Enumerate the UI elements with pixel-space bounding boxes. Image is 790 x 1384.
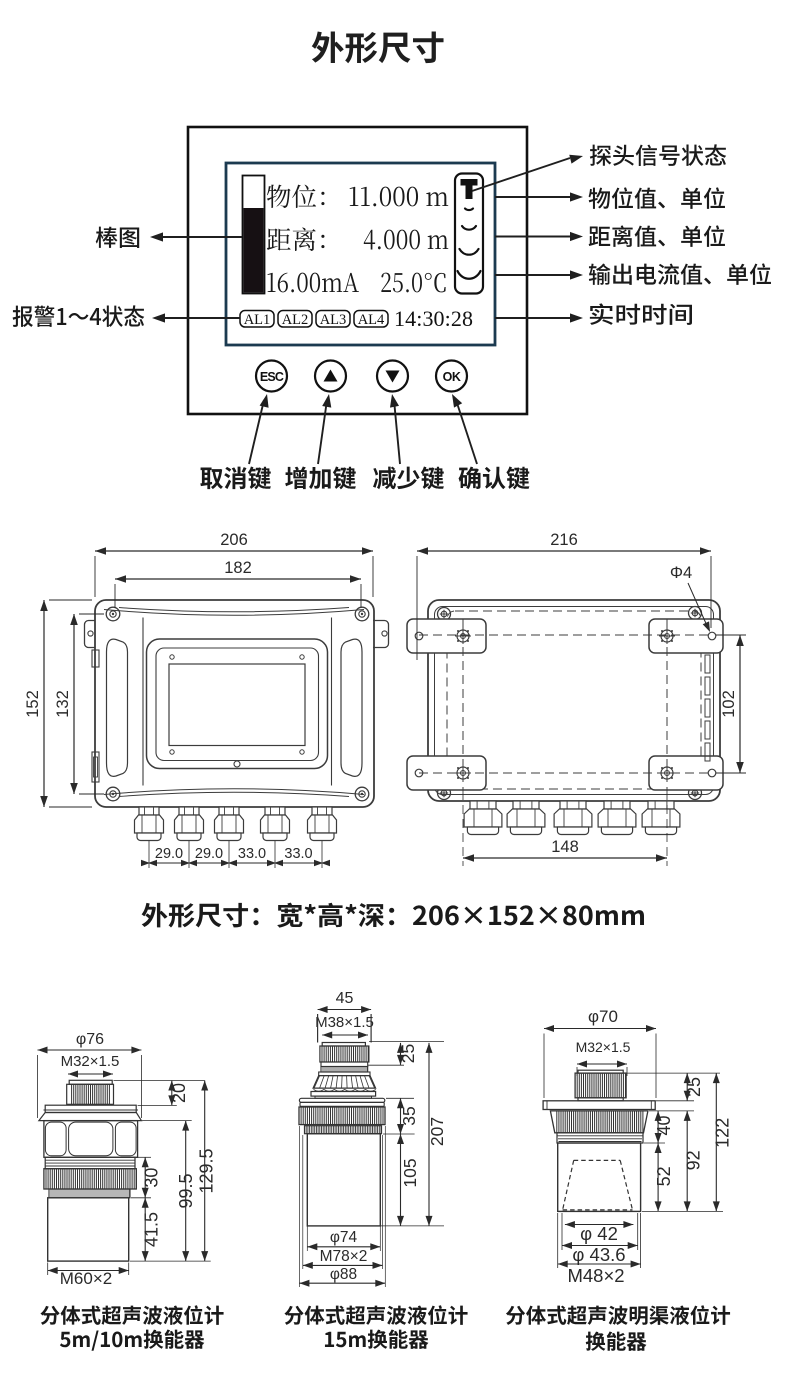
svg-text:φ 42: φ 42 (580, 1223, 618, 1244)
svg-text:35: 35 (399, 1106, 419, 1125)
svg-text:132: 132 (54, 690, 72, 718)
svg-text:52: 52 (654, 1166, 674, 1186)
svg-text:29.0: 29.0 (195, 846, 223, 862)
svg-text:φ74: φ74 (330, 1229, 358, 1246)
svg-text:45: 45 (336, 990, 354, 1007)
svg-text:102: 102 (720, 690, 738, 718)
svg-text:M60×2: M60×2 (60, 1269, 112, 1288)
svg-text:152: 152 (24, 690, 42, 718)
svg-text:ESC: ESC (260, 370, 284, 384)
svg-text:29.0: 29.0 (155, 846, 183, 862)
svg-text:25: 25 (684, 1077, 704, 1097)
svg-text:20: 20 (169, 1083, 189, 1103)
svg-text:25: 25 (398, 1044, 418, 1063)
svg-text:105: 105 (400, 1158, 420, 1187)
svg-text:Φ4: Φ4 (670, 564, 692, 582)
svg-text:M78×2: M78×2 (320, 1248, 368, 1265)
svg-text:φ70: φ70 (588, 1007, 618, 1026)
svg-text:122: 122 (713, 1118, 733, 1148)
svg-text:φ76: φ76 (76, 1031, 104, 1048)
svg-text:M32×1.5: M32×1.5 (576, 1039, 631, 1055)
svg-text:41.5: 41.5 (142, 1212, 162, 1247)
svg-text:40: 40 (654, 1115, 674, 1135)
svg-text:M38×1.5: M38×1.5 (315, 1014, 374, 1031)
svg-text:φ88: φ88 (330, 1266, 357, 1283)
svg-text:14:30:28: 14:30:28 (394, 306, 473, 331)
svg-text:M32×1.5: M32×1.5 (61, 1053, 120, 1070)
svg-text:33.0: 33.0 (238, 846, 266, 862)
svg-text:206: 206 (220, 531, 248, 549)
svg-text:33.0: 33.0 (284, 846, 312, 862)
svg-text:M48×2: M48×2 (567, 1265, 624, 1286)
svg-text:148: 148 (551, 838, 579, 856)
svg-text:216: 216 (550, 531, 578, 549)
svg-text:182: 182 (224, 559, 252, 577)
svg-text:30: 30 (142, 1168, 162, 1188)
svg-text:AL4: AL4 (358, 312, 385, 328)
svg-text:129.5: 129.5 (197, 1148, 217, 1193)
svg-text:92: 92 (684, 1150, 704, 1170)
svg-text:207: 207 (427, 1117, 447, 1146)
svg-text:φ 43.6: φ 43.6 (572, 1244, 625, 1265)
svg-text:OK: OK (443, 370, 461, 384)
svg-text:AL3: AL3 (320, 312, 347, 328)
svg-text:99.5: 99.5 (176, 1173, 196, 1208)
svg-text:AL1: AL1 (244, 312, 271, 328)
svg-text:AL2: AL2 (282, 312, 309, 328)
